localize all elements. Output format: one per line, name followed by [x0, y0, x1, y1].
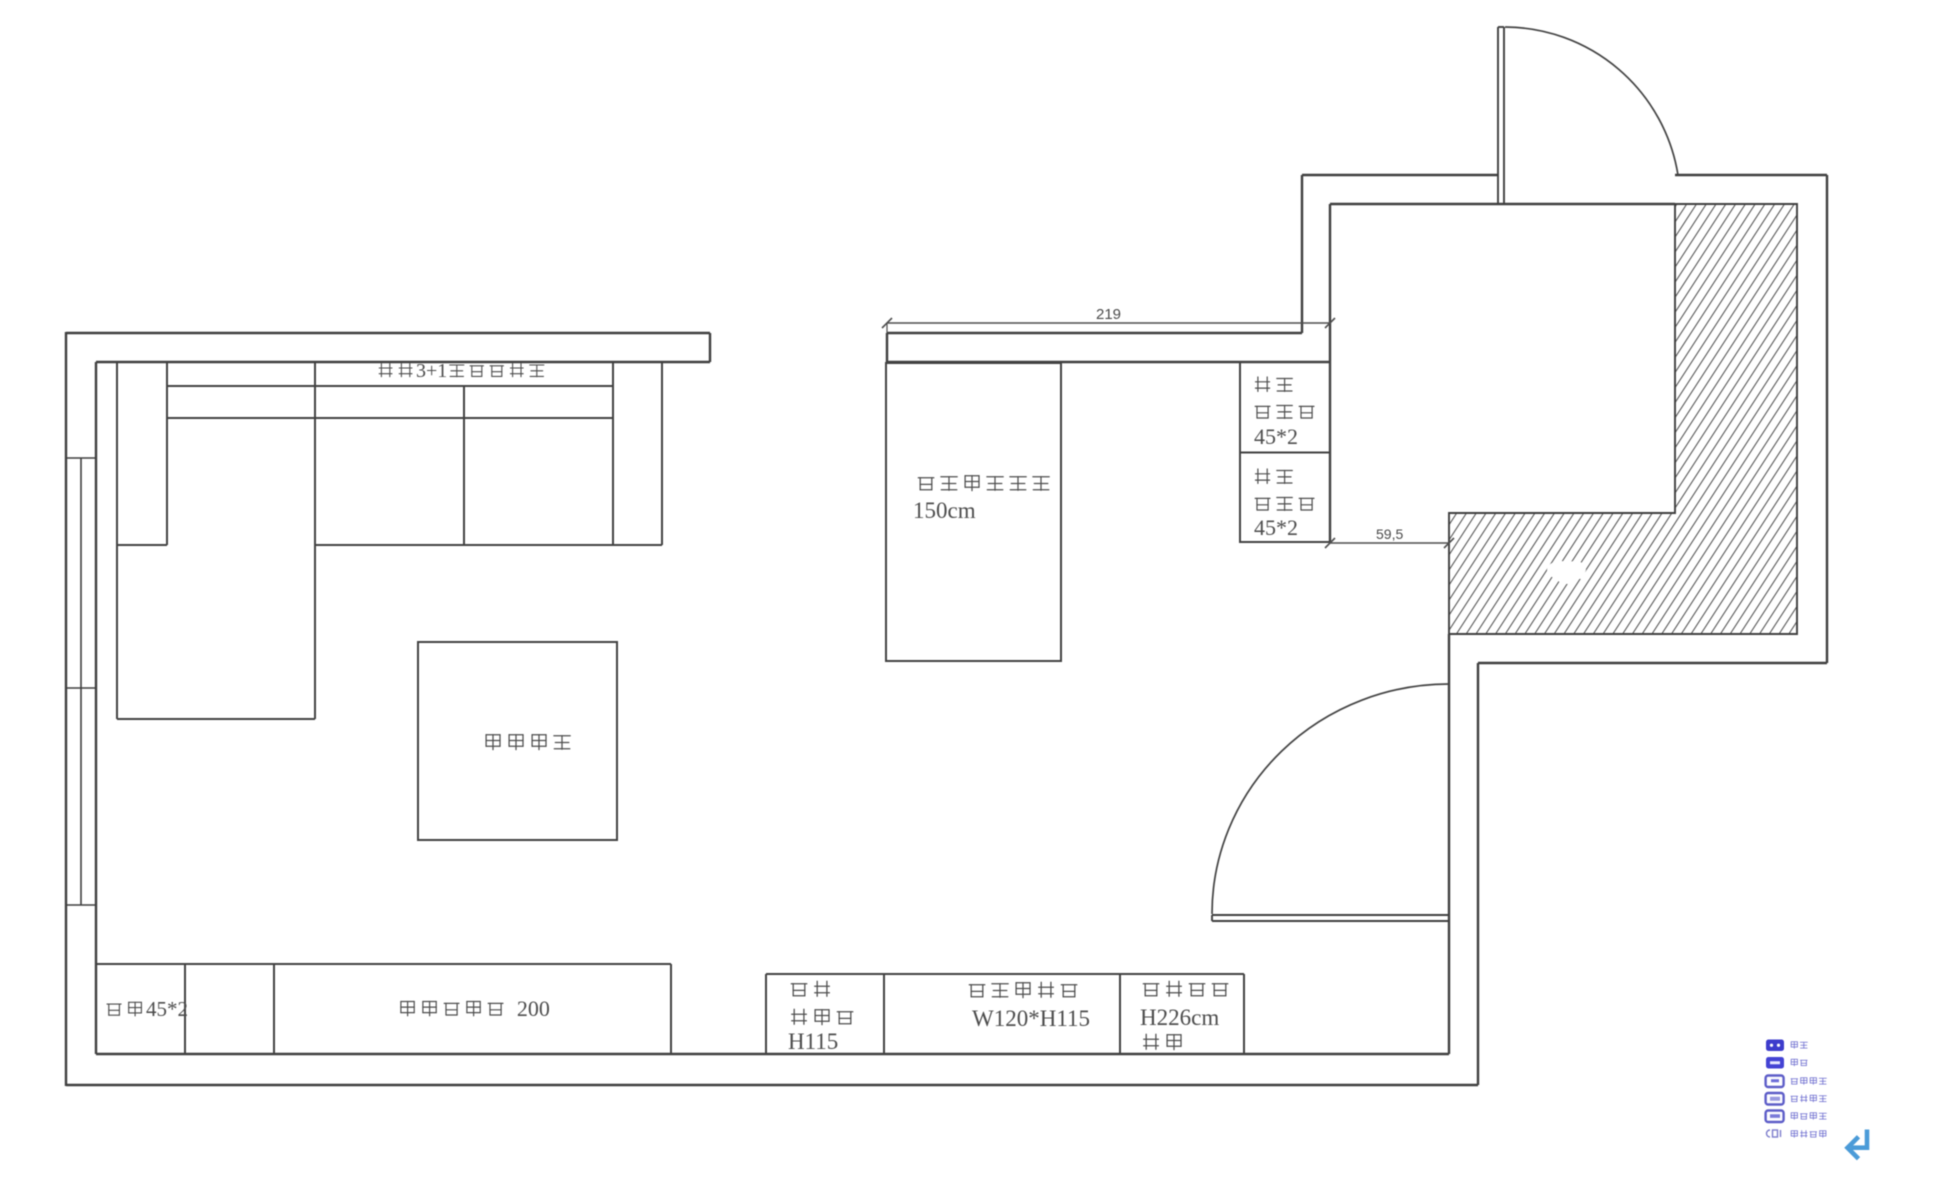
svg-text:3+1: 3+1	[416, 360, 447, 382]
svg-text:219: 219	[1096, 306, 1121, 323]
svg-text:45*2: 45*2	[1254, 424, 1298, 449]
svg-text:150cm: 150cm	[913, 498, 976, 523]
svg-text:H226cm: H226cm	[1140, 1005, 1219, 1030]
svg-text:200: 200	[517, 996, 550, 1021]
svg-text:45*2: 45*2	[1254, 515, 1298, 540]
svg-text:H115: H115	[788, 1029, 838, 1054]
svg-text:59,5: 59,5	[1376, 526, 1403, 542]
svg-text:W120*H115: W120*H115	[972, 1006, 1090, 1031]
svg-text:45*2: 45*2	[146, 997, 188, 1021]
